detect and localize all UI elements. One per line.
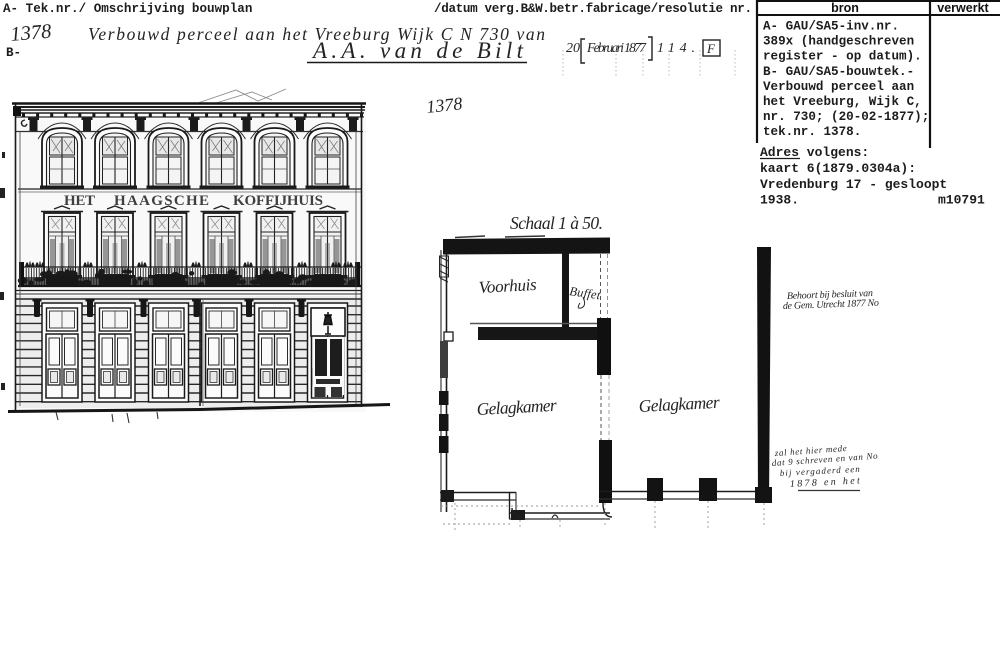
svg-text:bron: bron bbox=[831, 1, 859, 15]
svg-text:verwerkt: verwerkt bbox=[937, 1, 989, 15]
svg-text:B- GAU/SA5-bouwtek.-: B- GAU/SA5-bouwtek.- bbox=[763, 65, 914, 79]
svg-text:nr. 730; (20-02-1877);: nr. 730; (20-02-1877); bbox=[763, 110, 929, 124]
svg-text:A- Tek.nr./ Omschrijving bouwp: A- Tek.nr./ Omschrijving bouwplan bbox=[3, 2, 252, 16]
svg-text:HET: HET bbox=[64, 193, 95, 209]
svg-text:m10791: m10791 bbox=[938, 193, 985, 208]
svg-text:Adres volgens:: Adres volgens: bbox=[760, 145, 869, 160]
svg-text:de Gem. Utrecht 1877 No: de Gem. Utrecht 1877 No bbox=[783, 298, 879, 312]
svg-text:Buffet: Buffet bbox=[569, 284, 602, 302]
svg-text:1938.: 1938. bbox=[760, 193, 799, 208]
svg-text:HAAGSCHE: HAAGSCHE bbox=[114, 193, 209, 209]
svg-text:tek.nr. 1378.: tek.nr. 1378. bbox=[763, 125, 861, 139]
svg-text:Schaal 1 à 50.: Schaal 1 à 50. bbox=[510, 213, 603, 233]
svg-text:A- GAU/SA5-inv.nr.: A- GAU/SA5-inv.nr. bbox=[763, 20, 899, 34]
svg-text:kaart 6(1879.0304a):: kaart 6(1879.0304a): bbox=[760, 161, 916, 176]
svg-text:Gelagkamer: Gelagkamer bbox=[638, 392, 720, 416]
svg-text:Verbouwd perceel aan: Verbouwd perceel aan bbox=[763, 80, 914, 94]
svg-text:Februari 1877: Februari 1877 bbox=[586, 40, 647, 55]
svg-text:F: F bbox=[706, 41, 716, 56]
svg-text:/datum verg.B&W.betr.fabricage: /datum verg.B&W.betr.fabricage/resolutie… bbox=[434, 2, 752, 16]
svg-text:register - op datum).: register - op datum). bbox=[763, 50, 922, 64]
svg-text:Gelagkamer: Gelagkamer bbox=[476, 395, 557, 419]
svg-text:1378: 1378 bbox=[425, 93, 463, 117]
svg-text:389x (handgeschreven: 389x (handgeschreven bbox=[763, 35, 914, 49]
svg-text:1378: 1378 bbox=[10, 20, 54, 46]
svg-text:114.: 114. bbox=[657, 41, 695, 56]
svg-text:het Vreeburg, Wijk C,: het Vreeburg, Wijk C, bbox=[763, 95, 922, 109]
svg-text:Vredenburg 17 - gesloopt: Vredenburg 17 - gesloopt bbox=[760, 177, 947, 192]
svg-text:B-: B- bbox=[6, 46, 21, 60]
svg-text:1878 en het: 1878 en het bbox=[790, 475, 861, 490]
svg-text:Voorhuis: Voorhuis bbox=[478, 275, 537, 297]
svg-text:20: 20 bbox=[566, 41, 580, 56]
